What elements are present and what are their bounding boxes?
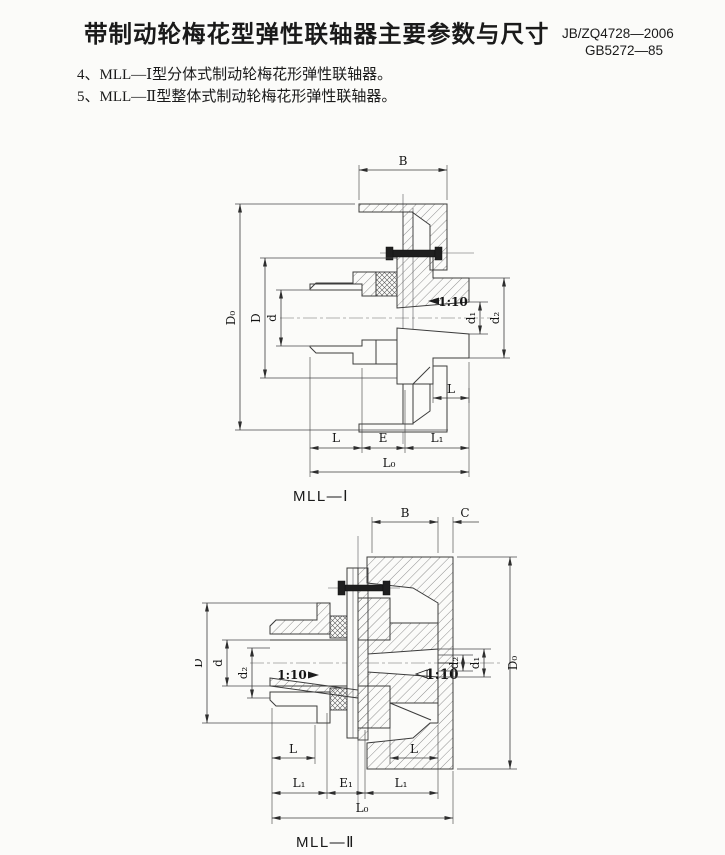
mll1-dim-B: B: [359, 154, 447, 200]
standard-number-gb: GB5272—85: [585, 43, 663, 58]
document-page: { "header": { "title": "带制动轮梅花型弹性联轴器主要参数…: [0, 0, 725, 855]
mll2-dim-d2-left: d₂: [236, 648, 270, 698]
mll1-caption: MLL—Ⅰ: [293, 487, 349, 505]
mll2-label-d: d: [211, 659, 225, 667]
mll1-label-d: d: [265, 314, 279, 322]
mll2-label-taper-left: 1:10: [277, 668, 306, 682]
mll1-label-L1: L₁: [431, 431, 444, 445]
standard-number-jb: JB/ZQ4728—2006: [562, 26, 674, 41]
mll1-spider-element: [376, 272, 397, 296]
mll1-label-D: D: [249, 313, 263, 323]
mll1-label-D0: D₀: [224, 311, 238, 326]
mll2-taper-left-annotation: 1:10: [277, 668, 319, 682]
mll1-label-d1: d₁: [464, 312, 478, 325]
mll2-label-L1-left: L₁: [293, 776, 306, 790]
note-item-4: 4、MLL—Ⅰ型分体式制动轮梅花形弹性联轴器。: [77, 63, 392, 84]
mll1-label-E: E: [379, 431, 388, 445]
mll2-label-D0: D₀: [506, 656, 520, 671]
note-item-5: 5、MLL—Ⅱ型整体式制动轮梅花形弹性联轴器。: [77, 85, 396, 106]
mll1-label-taper: 1:10: [438, 295, 467, 309]
mll2-label-L-left: L: [289, 742, 297, 756]
mll1-label-B: B: [399, 154, 408, 168]
mll2-dim-C: C: [453, 508, 479, 553]
mll1-label-L-left: L: [332, 431, 340, 445]
taper-arrow-icon: [308, 672, 319, 679]
mll1-left-hub: [310, 272, 376, 296]
mll2-label-d1: d₁: [468, 657, 482, 670]
mll1-label-d2: d₂: [488, 312, 502, 325]
mll2-section-drawing: B C D d d₂ 1:10 1:10 d: [195, 508, 530, 853]
mll2-label-B: B: [401, 508, 410, 520]
mll1-centerlines: [280, 194, 492, 444]
mll2-label-D: D: [195, 658, 205, 668]
mll2-label-d2-right: d₂: [447, 657, 461, 670]
mll1-label-L0: L₀: [383, 456, 396, 470]
mll2-label-C: C: [460, 508, 469, 520]
mll2-label-L0: L₀: [356, 801, 369, 815]
mll1-dim-L0: L₀: [310, 456, 469, 472]
mll2-dim-B: B: [372, 508, 438, 553]
mll2-label-L-right: L: [410, 742, 418, 756]
mll2-label-E1: E₁: [339, 776, 353, 790]
page-title: 带制动轮梅花型弹性联轴器主要参数与尺寸: [84, 15, 550, 49]
mll2-label-L1-right: L₁: [395, 776, 408, 790]
mll1-label-L-hub: L: [447, 382, 455, 396]
mll2-caption: MLL—Ⅱ: [296, 833, 355, 851]
mll2-label-d2-left: d₂: [236, 667, 250, 680]
mll1-lower-outline: [310, 328, 469, 432]
mll1-section-drawing: B D₀ D d 1:10 d₁ d₂: [222, 150, 522, 490]
